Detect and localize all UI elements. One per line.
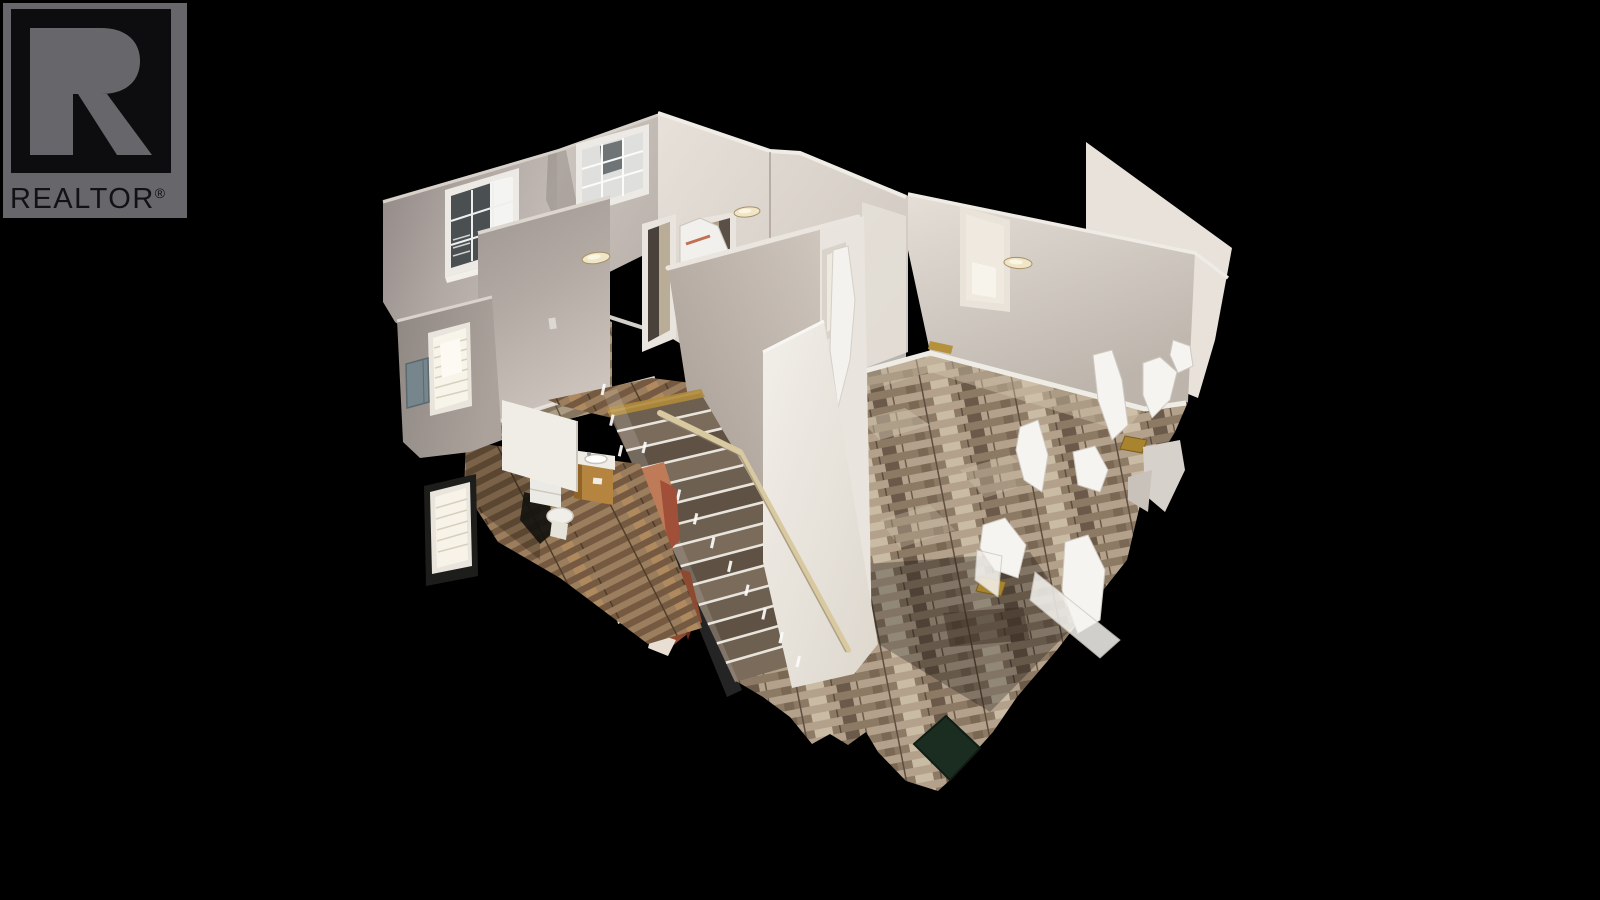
tour-viewer-stage: REALTOR®: [0, 0, 1600, 900]
wall-column-highlight: [862, 202, 906, 370]
lit-window: [428, 322, 472, 416]
bathroom-vanity: [572, 450, 615, 505]
realtor-r-glyph: [11, 9, 171, 173]
dollhouse-3d-view[interactable]: [0, 0, 1600, 900]
floor-opening-shadow: [943, 607, 1030, 647]
realtor-logo-box: [11, 9, 171, 173]
doorway-bathroom2: [960, 206, 1010, 312]
lower-lit-window: [424, 474, 478, 586]
brand-text: REALTOR: [10, 183, 155, 215]
vanity-drawer: [593, 478, 603, 485]
left-exterior-wall: [397, 296, 502, 458]
faucet: [587, 452, 591, 456]
electrical-panel: [406, 358, 429, 408]
realtor-logo-watermark: REALTOR®: [3, 3, 187, 218]
registered-mark: ®: [155, 185, 165, 201]
realtor-logo-text: REALTOR®: [3, 175, 187, 215]
